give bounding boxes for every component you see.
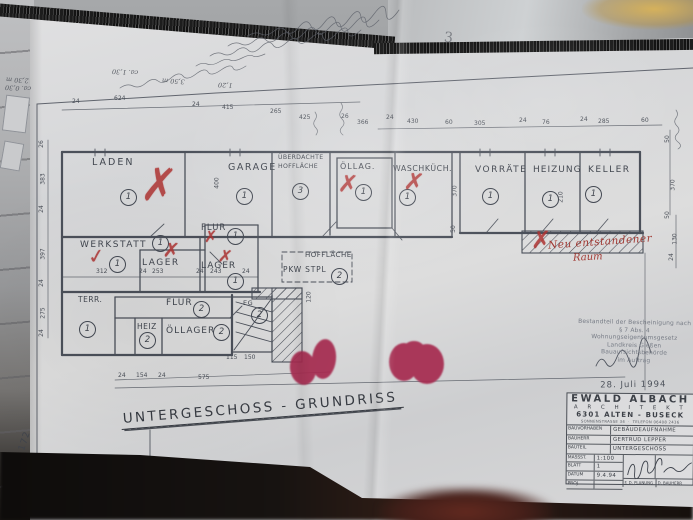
title-block-row-label: PROJ. bbox=[566, 480, 594, 488]
title-block-row-label: BLATT bbox=[567, 463, 595, 471]
dimension-label: 265 bbox=[270, 109, 281, 115]
dimension-label: 24 bbox=[196, 269, 204, 275]
dimension-label: 24 bbox=[386, 115, 394, 121]
room-label: PKW STPL bbox=[283, 266, 326, 274]
title-block-row-label: MASSST. bbox=[567, 454, 595, 462]
dimension-label: 24 bbox=[669, 253, 675, 261]
dimension-label: 24 bbox=[39, 329, 45, 337]
room-number-badge: 2 bbox=[331, 268, 348, 285]
room-number-badge: 2 bbox=[193, 301, 210, 318]
dimension-label: 400 bbox=[215, 177, 221, 188]
red-x-mark: ✗ bbox=[204, 229, 217, 245]
dimension-label: 366 bbox=[357, 120, 368, 126]
title-block-row: PROJ. bbox=[566, 480, 622, 489]
red-handwritten-note-line2: Raum bbox=[573, 251, 603, 264]
dimension-label: 26 bbox=[39, 140, 45, 148]
room-number-badge: 1 bbox=[482, 188, 499, 205]
phone-text: TELEFON 06408 2436 bbox=[633, 419, 680, 424]
dimension-label: 60 bbox=[641, 118, 649, 124]
architect-address: SONNENSTRASSE 34 · TELEFON 06408 2436 bbox=[567, 418, 693, 424]
red-x-mark: ✗ bbox=[402, 169, 425, 196]
dimension-label: 305 bbox=[474, 121, 485, 127]
dimension-label: 415 bbox=[222, 105, 233, 111]
red-check-mark: ✓ bbox=[87, 245, 106, 267]
signatures bbox=[624, 455, 692, 480]
red-x-mark: ✗ bbox=[337, 171, 359, 197]
dimension-label: 575 bbox=[198, 375, 209, 381]
title-block-row-label: BAUVORHABEN bbox=[567, 425, 611, 434]
approval-stamp: Bestandteil der Bescheinigung nach§ 7 Ab… bbox=[575, 319, 692, 391]
dimension-label: 50 bbox=[451, 225, 457, 233]
stamp-text: Bestandteil der Bescheinigung nach§ 7 Ab… bbox=[576, 319, 693, 367]
room-number-badge: 1 bbox=[109, 256, 126, 273]
title-block-footer-label: D. BAUHERR bbox=[657, 479, 693, 487]
title-block-row-value: 9.4.94 bbox=[595, 472, 623, 480]
dimension-label: 285 bbox=[598, 119, 609, 125]
dimension-label: 312 bbox=[96, 269, 107, 275]
dimension-label: 50 bbox=[665, 135, 671, 143]
signature-planner bbox=[628, 458, 662, 479]
photo-of-floor-plan-drawing: LADENGARAGEÜBERDACHTEHOFFLÄCHEÖLLAG.WASC… bbox=[0, 0, 693, 520]
dimension-label: 26 bbox=[341, 114, 349, 120]
dimension-label: 154 bbox=[136, 373, 147, 379]
title-block-row-value: 1 bbox=[595, 463, 623, 471]
dimension-label: 76 bbox=[542, 120, 550, 126]
room-label: EG bbox=[243, 300, 253, 307]
room-number-badge: 3 bbox=[292, 183, 309, 200]
room-number-badge: 1 bbox=[585, 186, 602, 203]
dimension-label: 24 bbox=[118, 373, 126, 379]
dimension-label: 425 bbox=[299, 115, 310, 121]
dimension-label: 150 bbox=[244, 355, 255, 361]
dimension-label: 383 bbox=[41, 173, 47, 184]
dimension-label: 24 bbox=[39, 205, 45, 213]
dimension-label: 24 bbox=[242, 269, 250, 275]
room-label: HOFFLÄCHE bbox=[278, 164, 318, 170]
room-label: GARAGE bbox=[228, 163, 277, 173]
room-number-badge: 1 bbox=[542, 191, 559, 208]
room-number-badge: 1 bbox=[79, 321, 96, 338]
title-block-row-value: 1:100 bbox=[595, 454, 623, 462]
handwritten-fragment: ca. 1,30 bbox=[112, 67, 139, 76]
stamp-line: § 7 Abs. 4 Wohnungseigentumsgesetz bbox=[576, 326, 692, 344]
dimension-label: 130 bbox=[673, 233, 679, 244]
room-number-badge: 1 bbox=[227, 228, 244, 245]
title-block-row-label: BAUTEIL bbox=[567, 445, 611, 454]
dimension-label: 243 bbox=[210, 269, 221, 275]
room-number-badge: 2 bbox=[139, 332, 156, 349]
handwritten-fragment: 3,50 m bbox=[162, 76, 185, 85]
dimension-label: 115 bbox=[226, 355, 237, 361]
room-label: TERR. bbox=[78, 296, 102, 304]
room-label: ÖLLAGER bbox=[166, 327, 215, 336]
dimension-label: 24 bbox=[158, 373, 166, 379]
title-block-row-label: BAUHERR bbox=[567, 435, 611, 444]
title-block: EWALD ALBACH A R C H I T E K T 6301 ALTE… bbox=[566, 392, 693, 485]
dimension-label: 210 bbox=[559, 191, 565, 202]
red-x-mark: ✗ bbox=[139, 160, 179, 212]
room-label: HEIZ bbox=[137, 323, 157, 331]
title-block-row-value: UNTERGESCHOSS bbox=[611, 445, 693, 454]
signature-client bbox=[664, 462, 692, 472]
dimension-label: 430 bbox=[407, 119, 418, 125]
handwritten-fragment: ca. 0,30 bbox=[5, 83, 32, 92]
room-number-badge: 1 bbox=[227, 273, 244, 290]
room-label: LADEN bbox=[92, 158, 134, 168]
room-number-badge: 1 bbox=[236, 188, 253, 205]
dimension-label: 24 bbox=[139, 269, 147, 275]
title-block-bottom: MASSST.1:100BLATT1DATUM9.4.94PROJ. F. D.… bbox=[567, 454, 693, 487]
title-block-header: EWALD ALBACH A R C H I T E K T 6301 ALTE… bbox=[567, 393, 693, 426]
stamp-line: im Auftrag bbox=[576, 357, 692, 367]
room-number-badge: 1 bbox=[120, 189, 137, 206]
red-x-mark: ✗ bbox=[162, 239, 180, 260]
room-label: VORRÄTE bbox=[475, 166, 527, 175]
dimension-label: 50 bbox=[665, 211, 671, 219]
dimension-label: 60 bbox=[445, 120, 453, 126]
address-text: SONNENSTRASSE 34 bbox=[581, 418, 625, 423]
handwritten-page-number: 3 bbox=[443, 30, 454, 47]
dimension-label: 120 bbox=[307, 291, 313, 302]
red-x-mark: ✗ bbox=[217, 248, 233, 267]
dimension-label: 624 bbox=[114, 96, 125, 102]
room-label: FLUR bbox=[166, 299, 193, 308]
title-block-row-value: GERTRUD LEPPER bbox=[611, 435, 693, 444]
title-block-row-value: GEBÄUDEAUFNAHME bbox=[611, 426, 693, 435]
dimension-label: 397 bbox=[41, 248, 47, 259]
dimension-label: 24 bbox=[580, 117, 588, 123]
dimension-label: 253 bbox=[152, 269, 163, 275]
dimension-label: 24 bbox=[519, 118, 527, 124]
room-number-badge: 2 bbox=[213, 324, 230, 341]
dimension-label: 370 bbox=[453, 185, 459, 196]
title-block-row-value bbox=[594, 480, 622, 488]
dimension-label: 24 bbox=[72, 99, 80, 105]
signature-area: F. D. PLANUNGD. BAUHERR bbox=[623, 455, 693, 488]
room-label: ÜBERDACHTE bbox=[278, 155, 323, 161]
dimension-label: 24 bbox=[39, 279, 45, 287]
handwritten-fragment: 1,20 bbox=[218, 81, 233, 90]
room-label: KELLER bbox=[588, 166, 631, 175]
dimension-label: 275 bbox=[41, 307, 47, 318]
title-block-mini-rows: MASSST.1:100BLATT1DATUM9.4.94PROJ. bbox=[567, 454, 623, 487]
room-label: HEIZUNG bbox=[533, 166, 582, 175]
dimension-label: 370 bbox=[671, 179, 677, 190]
stamp-date: 28. Juli 1994 bbox=[575, 381, 691, 390]
title-block-row-label: DATUM bbox=[567, 471, 595, 479]
room-label: HOFFLÄCHE bbox=[305, 252, 352, 259]
room-number-badge: 2 bbox=[251, 307, 268, 324]
title-block-footer-label: F. D. PLANUNG bbox=[624, 479, 657, 487]
dimension-label: 24 bbox=[192, 102, 200, 108]
title-block-rows: BAUVORHABENGEBÄUDEAUFNAHMEBAUHERRGERTRUD… bbox=[567, 425, 693, 455]
